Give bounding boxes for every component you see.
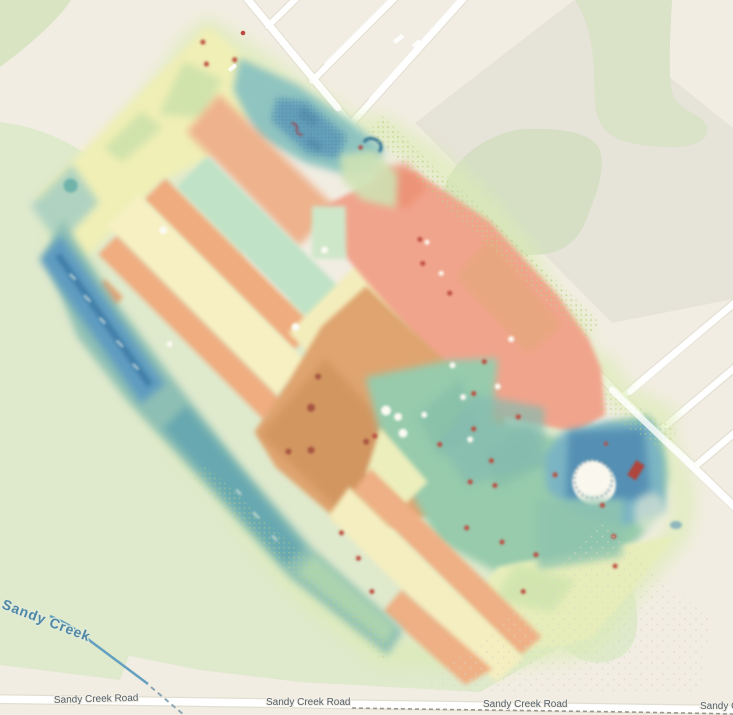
svg-text:Sandy Creek Road: Sandy Creek Road bbox=[54, 693, 139, 706]
svg-text:Sandy Creek Road: Sandy Creek Road bbox=[266, 697, 351, 708]
svg-text:Sandy Cr: Sandy Cr bbox=[700, 701, 733, 712]
svg-text:Sandy Creek Road: Sandy Creek Road bbox=[483, 699, 568, 710]
